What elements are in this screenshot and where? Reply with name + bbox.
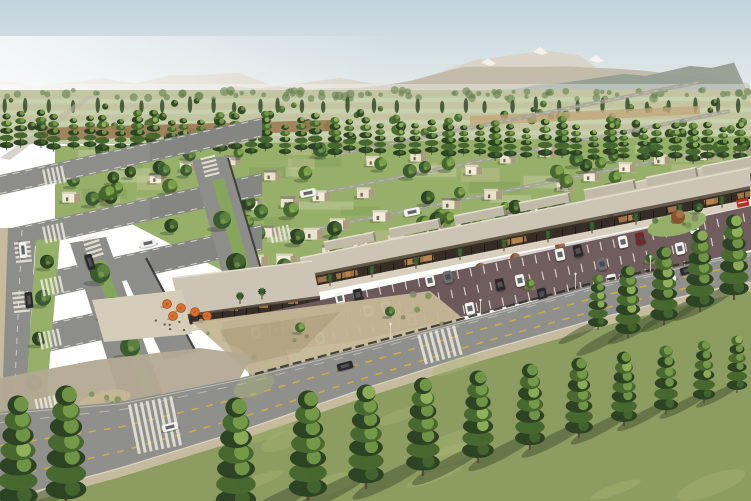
light-pole	[480, 300, 481, 315]
house	[354, 187, 375, 199]
house	[463, 165, 482, 177]
aerial-rendering: Aerial 3D architectural rendering of a d…	[0, 0, 751, 501]
light-pole	[650, 257, 651, 272]
light-pole	[390, 324, 391, 339]
light-pole	[575, 274, 576, 289]
house	[370, 210, 392, 223]
house	[59, 192, 80, 204]
rendering-canvas	[0, 0, 751, 501]
house	[481, 189, 502, 201]
house	[616, 162, 635, 174]
house	[261, 170, 281, 182]
